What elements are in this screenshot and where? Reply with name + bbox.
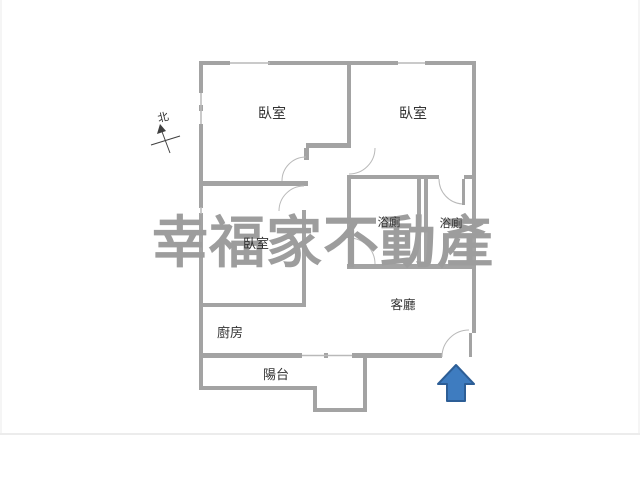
- door-arc-bedroom-top-left: [282, 157, 306, 181]
- wall-segment: [306, 143, 347, 148]
- wall-segment: [199, 303, 306, 307]
- wall-segment: [352, 353, 442, 358]
- compass-arrowhead: [157, 124, 166, 134]
- floor-plan: 幸福家不動產 臥室 臥室 臥室 浴廁 浴廁 客廳 廚房 陽台 北: [0, 0, 640, 480]
- room-label-bathroom-left: 浴廁: [378, 215, 401, 229]
- wall-segment: [313, 390, 317, 410]
- wall-segment: [304, 148, 309, 160]
- compass-arrow-icon: [151, 129, 180, 153]
- wall-segment: [363, 357, 367, 412]
- compass-north-label: 北: [156, 110, 170, 125]
- wall-segment: [199, 61, 230, 65]
- room-label-bedroom-top-left: 臥室: [258, 105, 286, 122]
- wall-segment: [203, 353, 302, 358]
- door-arc-entrance: [442, 330, 469, 357]
- room-label-living-room: 客廳: [390, 297, 416, 312]
- room-label-kitchen: 廚房: [217, 325, 243, 340]
- room-label-bedroom-top-right: 臥室: [399, 105, 427, 122]
- wall-segment: [351, 175, 439, 179]
- wall-segment: [347, 65, 351, 148]
- wall-segment: [313, 408, 367, 412]
- wall-segment: [464, 175, 476, 179]
- door-arc-bathroom-right: [439, 179, 462, 204]
- wall-segment: [268, 61, 398, 65]
- wall-segment: [199, 61, 203, 93]
- door-leaf: [462, 179, 465, 205]
- room-label-balcony: 陽台: [263, 367, 289, 382]
- door-leaf: [469, 333, 472, 357]
- compass: 北: [151, 110, 180, 153]
- wall-segment: [199, 181, 308, 186]
- wall-segment: [472, 61, 476, 333]
- door-arc-bedroom-lower-left: [279, 186, 304, 211]
- wall-segment: [199, 386, 317, 390]
- room-label-bathroom-right: 浴廁: [440, 216, 463, 230]
- wall-segment: [199, 124, 203, 208]
- room-label-bedroom-lower-left: 臥室: [243, 236, 269, 251]
- wall-segment: [425, 61, 476, 65]
- entrance-arrow-icon: [438, 365, 474, 401]
- door-arc-bedroom-top-right: [349, 148, 375, 174]
- floorplan-canvas: 幸福家不動產 臥室 臥室 臥室 浴廁 浴廁 客廳 廚房 陽台 北: [0, 0, 640, 480]
